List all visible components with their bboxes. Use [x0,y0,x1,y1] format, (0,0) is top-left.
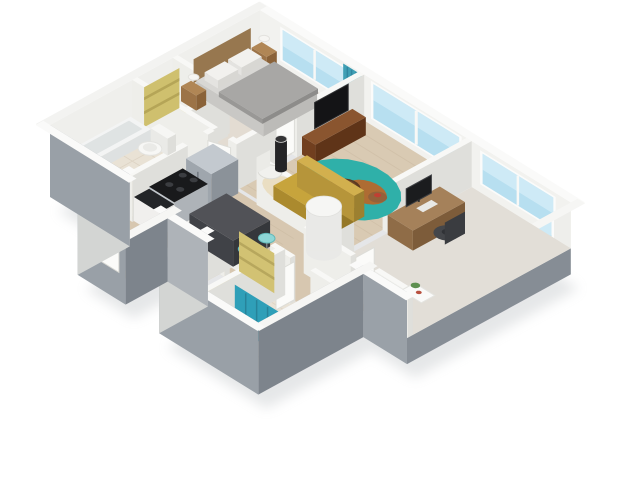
column [306,196,342,261]
bar-stool-1 [258,233,275,243]
floor-lamp [275,136,287,173]
lamp-2 [188,74,199,80]
floorplan-stage [0,0,640,480]
lamp-1 [259,35,270,41]
floorplan-render [0,0,640,480]
scene-root [36,2,585,409]
